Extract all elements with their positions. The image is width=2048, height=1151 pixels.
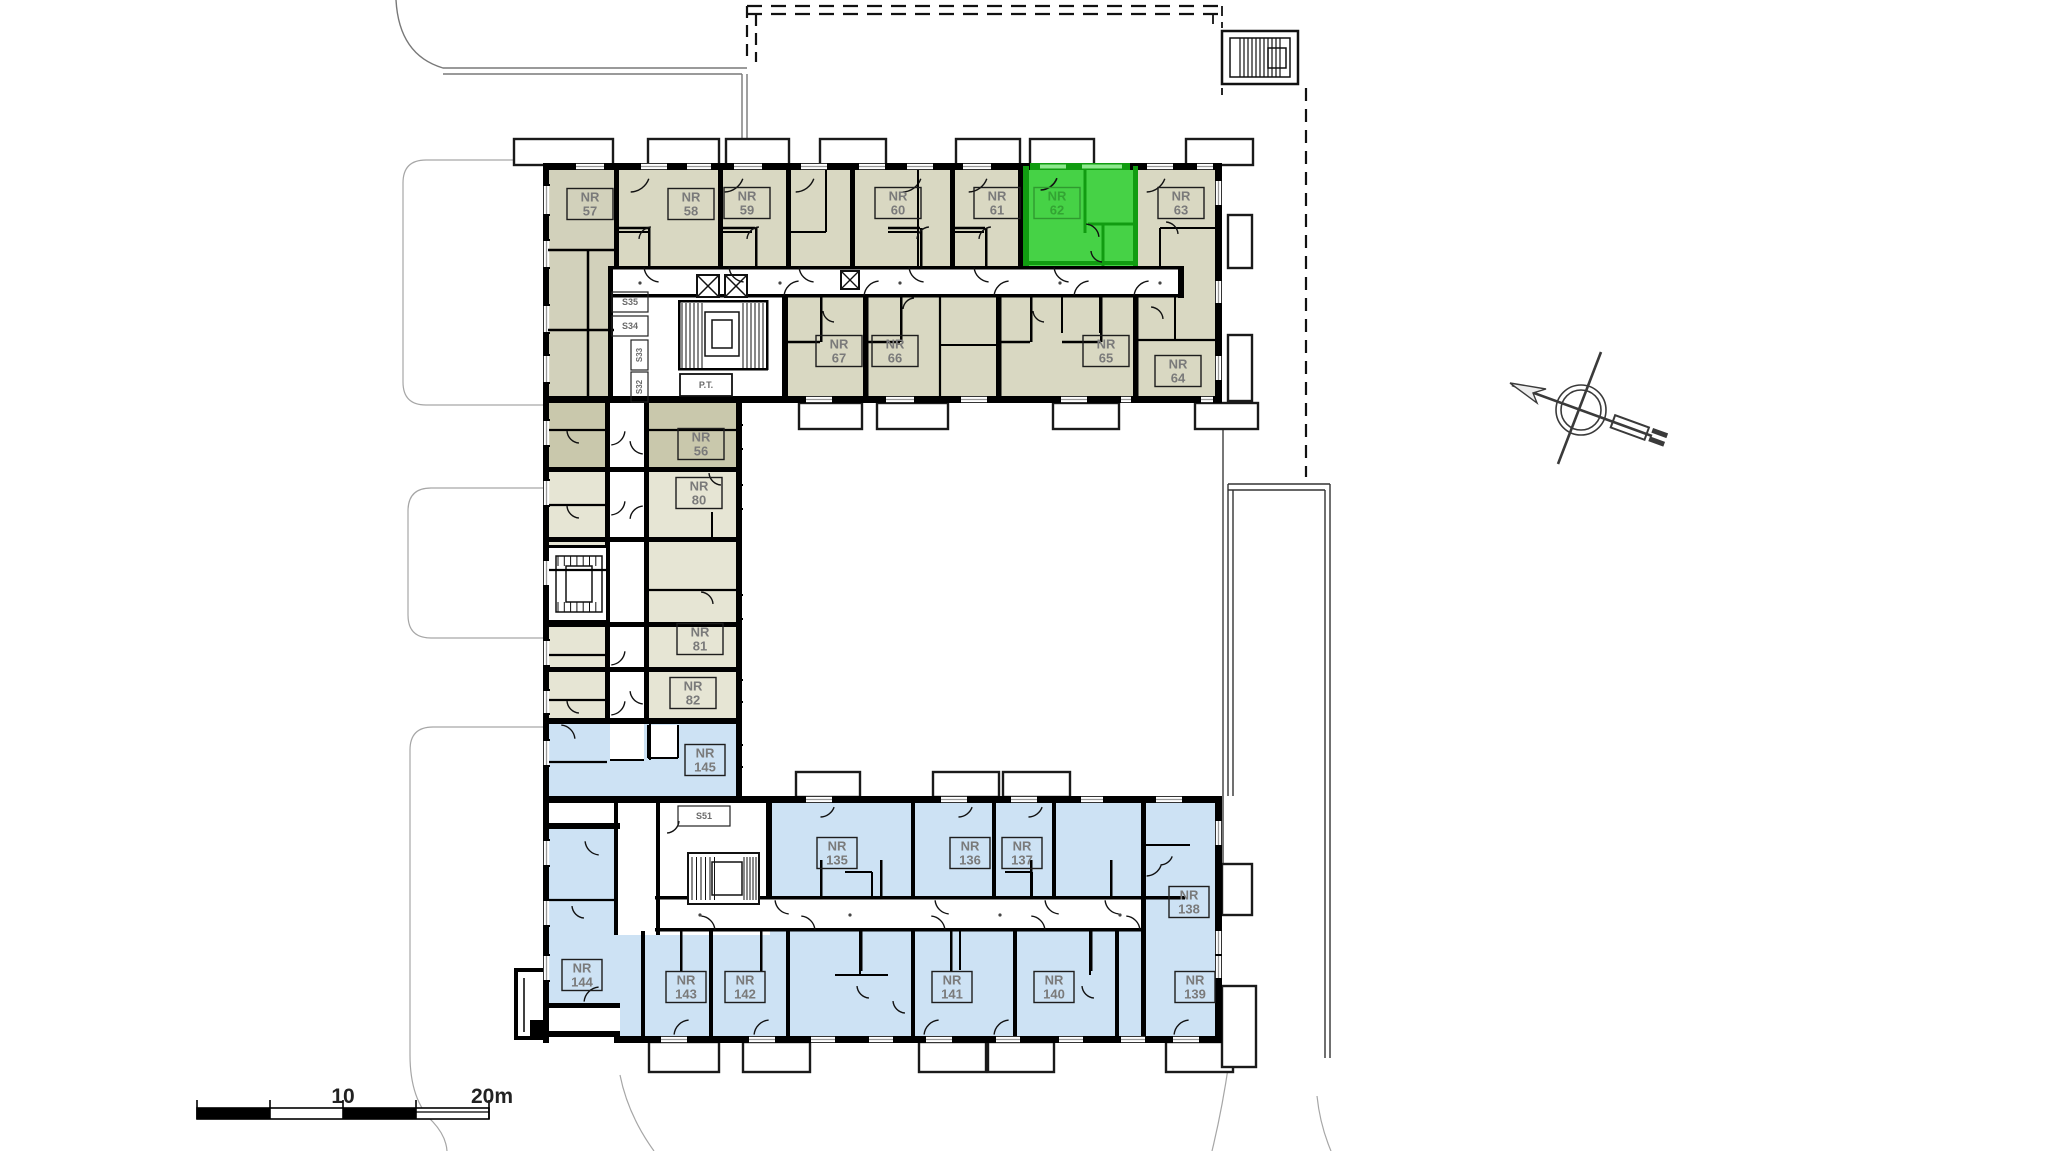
- svg-text:144: 144: [571, 975, 593, 990]
- svg-text:NR: NR: [1048, 189, 1067, 204]
- svg-text:67: 67: [832, 351, 846, 366]
- svg-text:NR: NR: [692, 430, 711, 445]
- svg-text:S33: S33: [635, 347, 644, 362]
- svg-text:NR: NR: [886, 337, 905, 352]
- svg-text:64: 64: [1171, 371, 1186, 386]
- svg-text:139: 139: [1184, 987, 1206, 1002]
- svg-text:57: 57: [583, 204, 597, 219]
- svg-text:NR: NR: [691, 625, 710, 640]
- svg-text:141: 141: [941, 987, 963, 1002]
- svg-text:NR: NR: [736, 973, 755, 988]
- svg-text:138: 138: [1178, 902, 1200, 917]
- svg-text:NR: NR: [1045, 973, 1064, 988]
- svg-text:NR: NR: [696, 746, 715, 761]
- svg-text:81: 81: [693, 639, 707, 654]
- svg-text:142: 142: [734, 987, 756, 1002]
- svg-text:NR: NR: [581, 190, 600, 205]
- svg-text:NR: NR: [677, 973, 696, 988]
- svg-text:140: 140: [1043, 987, 1065, 1002]
- svg-text:P.T.: P.T.: [699, 380, 713, 390]
- svg-text:NR: NR: [828, 839, 847, 854]
- svg-text:S34: S34: [622, 321, 638, 331]
- svg-text:NR: NR: [690, 479, 709, 494]
- svg-text:S51: S51: [696, 811, 712, 821]
- svg-text:145: 145: [694, 760, 716, 775]
- svg-text:NR: NR: [1169, 357, 1188, 372]
- svg-text:66: 66: [888, 351, 902, 366]
- svg-text:136: 136: [959, 853, 981, 868]
- svg-text:NR: NR: [943, 973, 962, 988]
- svg-text:82: 82: [686, 693, 700, 708]
- svg-text:NR: NR: [961, 839, 980, 854]
- svg-text:NR: NR: [1186, 973, 1205, 988]
- svg-text:58: 58: [684, 204, 698, 219]
- svg-text:NR: NR: [573, 961, 592, 976]
- svg-text:NR: NR: [988, 189, 1007, 204]
- svg-text:65: 65: [1099, 351, 1113, 366]
- svg-text:S32: S32: [635, 379, 644, 394]
- svg-text:NR: NR: [830, 337, 849, 352]
- svg-text:NR: NR: [682, 190, 701, 205]
- svg-text:59: 59: [740, 203, 754, 218]
- svg-text:NR: NR: [684, 679, 703, 694]
- svg-text:NR: NR: [889, 189, 908, 204]
- svg-text:10: 10: [331, 1085, 354, 1108]
- svg-text:80: 80: [692, 493, 706, 508]
- svg-text:135: 135: [826, 853, 848, 868]
- svg-text:63: 63: [1174, 203, 1188, 218]
- svg-text:NR: NR: [1180, 888, 1199, 903]
- svg-text:61: 61: [990, 203, 1004, 218]
- svg-text:NR: NR: [1097, 337, 1116, 352]
- svg-text:137: 137: [1011, 853, 1033, 868]
- svg-text:143: 143: [675, 987, 697, 1002]
- svg-text:NR: NR: [738, 189, 757, 204]
- svg-text:NR: NR: [1013, 839, 1032, 854]
- svg-text:60: 60: [891, 203, 905, 218]
- svg-text:NR: NR: [1172, 189, 1191, 204]
- svg-text:20m: 20m: [471, 1085, 513, 1108]
- svg-text:S35: S35: [622, 297, 638, 307]
- svg-text:62: 62: [1050, 203, 1064, 218]
- svg-text:56: 56: [694, 444, 708, 459]
